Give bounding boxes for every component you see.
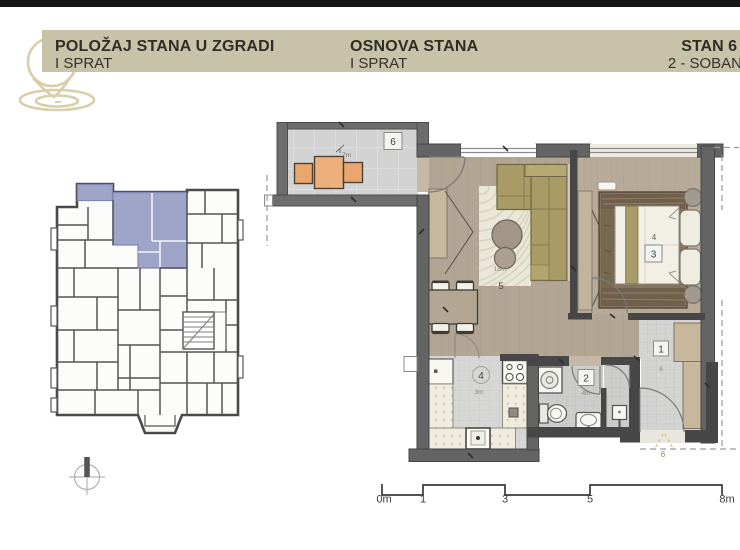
svg-text:3: 3	[502, 494, 508, 506]
svg-text:OSNOVA STANA: OSNOVA STANA	[350, 38, 479, 55]
svg-text:1: 1	[658, 345, 664, 356]
svg-text:POLOŽAJ STANA U ZGRADI: POLOŽAJ STANA U ZGRADI	[55, 36, 275, 55]
svg-text:4: 4	[652, 233, 657, 242]
svg-text:I SPRAT: I SPRAT	[55, 55, 112, 72]
svg-text:5: 5	[498, 281, 503, 292]
svg-text:I SPRAT: I SPRAT	[350, 55, 407, 72]
svg-text:7m: 7m	[342, 152, 351, 159]
svg-text:6: 6	[661, 450, 666, 459]
svg-text:3m: 3m	[474, 389, 483, 396]
svg-text:2: 2	[583, 374, 589, 385]
svg-text:6: 6	[390, 137, 396, 148]
svg-text:8: 8	[659, 366, 663, 373]
svg-text:STAN 6: STAN 6	[681, 38, 737, 55]
svg-text:4m: 4m	[581, 390, 590, 397]
svg-text:1: 1	[420, 494, 426, 506]
svg-text:2 - SOBAN: 2 - SOBAN	[668, 55, 740, 72]
svg-text:4: 4	[478, 371, 484, 382]
svg-text:5: 5	[587, 494, 593, 506]
svg-text:8m: 8m	[719, 494, 734, 506]
svg-text:3: 3	[651, 250, 657, 261]
svg-text:18m: 18m	[494, 266, 507, 273]
svg-text:0m: 0m	[376, 494, 391, 506]
